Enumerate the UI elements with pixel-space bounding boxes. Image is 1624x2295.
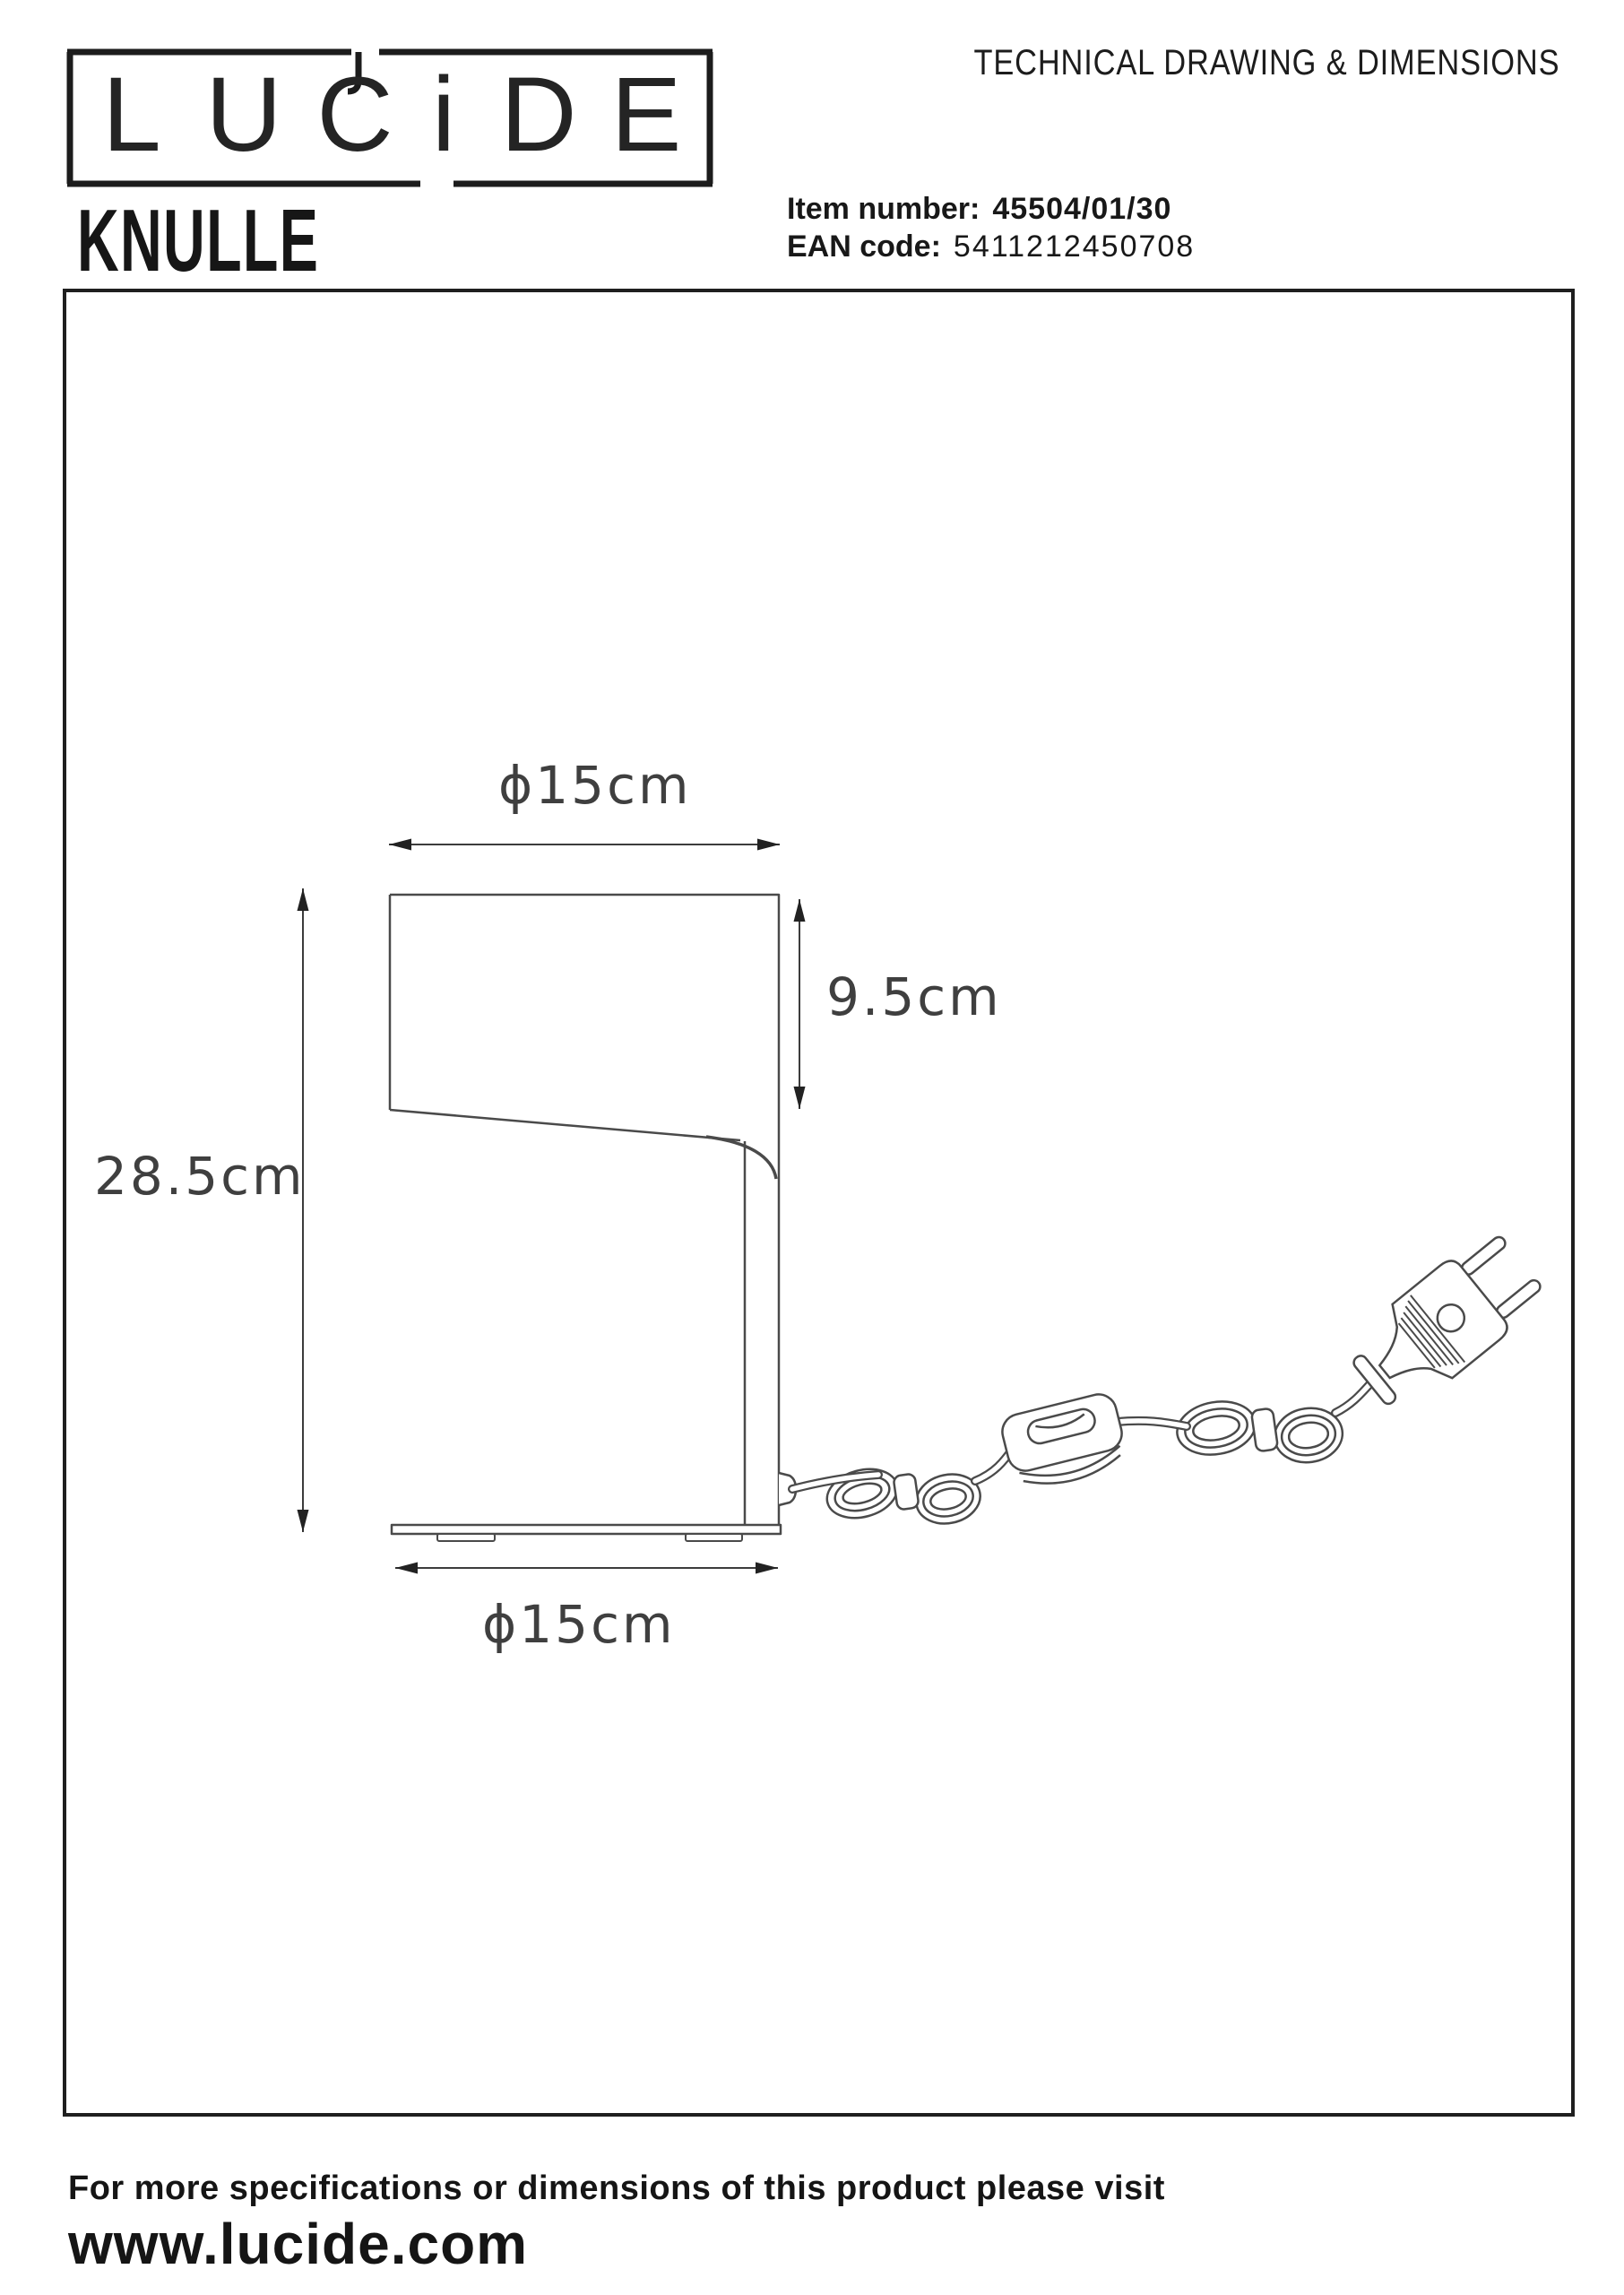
cord-coil-left-wrap (893, 1474, 919, 1511)
lamp-shade-bottom-slant (390, 1110, 740, 1140)
dim-label-shade-height: 9.5cm (826, 966, 1002, 1027)
lamp-base-foot-left (437, 1534, 495, 1541)
lamp-side-view (390, 895, 796, 1541)
lamp-base-plate (392, 1525, 781, 1534)
dimension-arrows (303, 844, 799, 1568)
power-cord (792, 1224, 1551, 1529)
dim-label-top-width: ɸ15cm (498, 755, 691, 816)
footer-note: For more specifications or dimensions of… (68, 2169, 1165, 2208)
dim-label-base-width: ɸ15cm (482, 1594, 675, 1655)
footer-website-link[interactable]: www.lucide.com (68, 2211, 528, 2277)
lamp-sheet-bend-curve (706, 1137, 776, 1179)
inline-switch (998, 1390, 1130, 1494)
power-plug (1340, 1224, 1551, 1421)
dim-label-total-height: 28.5cm (94, 1146, 306, 1207)
lamp-base-foot-right (686, 1534, 742, 1541)
spec-sheet-page: { "header": { "logo": { "letters": ["L",… (0, 0, 1624, 2295)
plug-pin-top (1459, 1234, 1507, 1277)
lamp-shade-top-and-right-edge (390, 895, 779, 1525)
cord-coil-right-wrap (1251, 1408, 1278, 1452)
plug-pin-bottom (1494, 1277, 1542, 1320)
